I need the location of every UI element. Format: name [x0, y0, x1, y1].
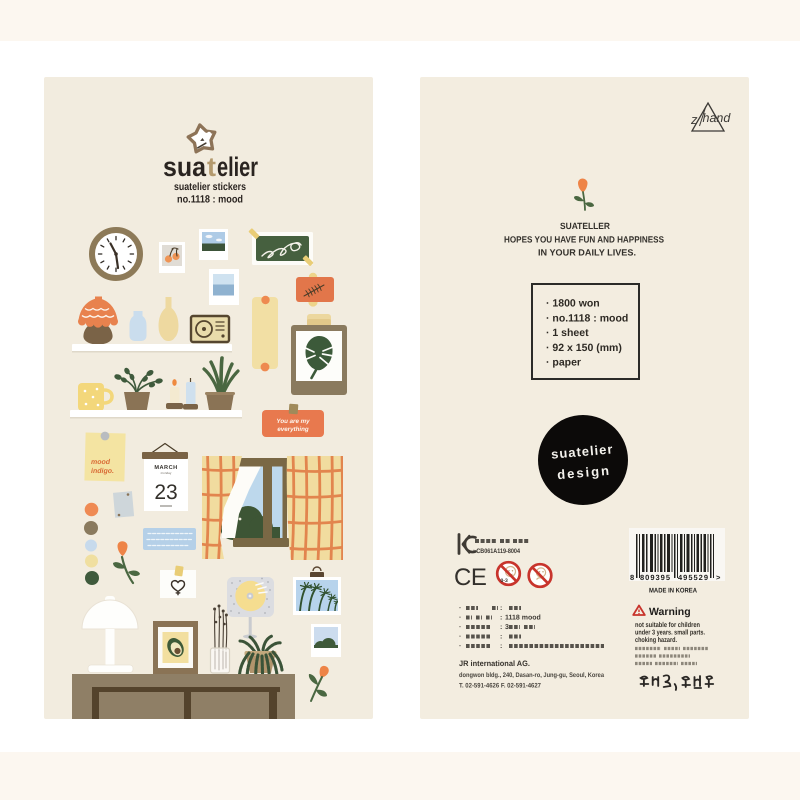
svg-text:no.1118 : mood: no.1118 : mood [177, 194, 243, 206]
svg-text::: : [500, 624, 502, 631]
svg-text:·: · [459, 634, 461, 641]
svg-text:hand: hand [703, 111, 732, 125]
svg-text:0-3: 0-3 [501, 578, 508, 584]
svg-text:1118 mood: 1118 mood [505, 614, 541, 622]
svg-text:not suitable for children: not suitable for children [635, 621, 700, 629]
svg-text:8: 8 [630, 573, 634, 582]
svg-text::: : [500, 615, 502, 622]
svg-text:suatelier stickers: suatelier stickers [174, 181, 246, 193]
svg-text:under 3 years. small parts.: under 3 years. small parts. [635, 629, 705, 637]
svg-text:MADE IN KOREA: MADE IN KOREA [649, 588, 697, 595]
svg-text:JR international AG.: JR international AG. [459, 659, 530, 668]
svg-text::: : [500, 643, 502, 650]
svg-text:monday: monday [161, 471, 172, 475]
svg-text:t: t [207, 152, 216, 182]
svg-text:choking hazard.: choking hazard. [635, 636, 677, 644]
svg-text:· 1 sheet: · 1 sheet [546, 327, 589, 339]
svg-text:IN YOUR DAILY LIVES.: IN YOUR DAILY LIVES. [538, 248, 636, 258]
svg-text::: : [500, 634, 502, 641]
svg-text:mood: mood [91, 458, 111, 466]
svg-text:: CB061A119-8004: : CB061A119-8004 [473, 548, 520, 555]
svg-text:>: > [716, 573, 721, 582]
svg-text:495529: 495529 [678, 573, 709, 582]
svg-text:· 1800 won: · 1800 won [546, 298, 600, 310]
svg-text:You are my: You are my [276, 418, 310, 425]
svg-text:SUATELLER: SUATELLER [560, 221, 610, 231]
svg-text:everything: everything [277, 426, 309, 433]
svg-text:· no.1118 : mood: · no.1118 : mood [546, 313, 628, 325]
svg-text::: : [500, 605, 502, 612]
svg-text:CE: CE [454, 564, 486, 591]
svg-text:23: 23 [154, 481, 177, 504]
svg-text:·: · [459, 643, 461, 650]
svg-text:sua: sua [163, 152, 207, 182]
svg-text:Warning: Warning [649, 606, 691, 618]
svg-text:·: · [459, 605, 461, 612]
svg-text:· paper: · paper [546, 357, 581, 369]
svg-text:T. 02-591-4626 F. 02-591-462: T. 02-591-4626 F. 02-591-4627 [459, 683, 541, 690]
svg-text:dongwon bldg., 240, Dasan-ro,: dongwon bldg., 240, Dasan-ro, Jung-gu, S… [459, 672, 604, 679]
svg-text:809395: 809395 [640, 573, 671, 582]
svg-text:·: · [459, 624, 461, 631]
svg-text:indigo.: indigo. [91, 467, 114, 475]
svg-text:HOPES YOU HAVE FUN AND HAPPINE: HOPES YOU HAVE FUN AND HAPPINESS [504, 235, 664, 245]
svg-text:elier: elier [217, 152, 258, 182]
svg-text:· 92 x 150 (mm): · 92 x 150 (mm) [546, 342, 622, 354]
svg-text:3: 3 [505, 624, 509, 631]
svg-text:z: z [690, 112, 698, 127]
svg-text:·: · [459, 615, 461, 622]
